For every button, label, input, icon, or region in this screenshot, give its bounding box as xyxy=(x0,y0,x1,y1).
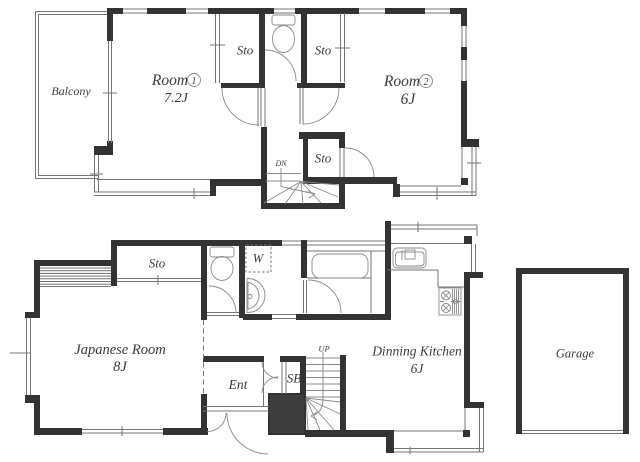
svg-text:Garage: Garage xyxy=(556,347,595,361)
svg-text:Sto: Sto xyxy=(315,43,332,58)
svg-text:8J: 8J xyxy=(113,359,127,375)
svg-text:6J: 6J xyxy=(401,91,417,108)
svg-text:Sto: Sto xyxy=(149,256,166,271)
svg-text:7.2J: 7.2J xyxy=(164,91,189,106)
svg-text:6J: 6J xyxy=(411,361,425,376)
svg-text:DN: DN xyxy=(274,159,287,168)
svg-text:Balcony: Balcony xyxy=(51,84,91,98)
svg-text:UP: UP xyxy=(318,344,329,354)
svg-text:SB: SB xyxy=(287,371,302,386)
svg-text:Japanese Room: Japanese Room xyxy=(74,342,165,358)
svg-text:W: W xyxy=(253,252,265,266)
svg-text:Sto: Sto xyxy=(315,151,332,166)
svg-text:2: 2 xyxy=(424,77,429,88)
svg-text:Dinning Kitchen: Dinning Kitchen xyxy=(371,344,462,359)
svg-text:Room: Room xyxy=(383,73,420,90)
svg-text:Ent: Ent xyxy=(228,377,249,392)
svg-text:Room: Room xyxy=(151,72,188,89)
svg-text:1: 1 xyxy=(192,76,197,87)
svg-text:Sto: Sto xyxy=(237,43,254,58)
